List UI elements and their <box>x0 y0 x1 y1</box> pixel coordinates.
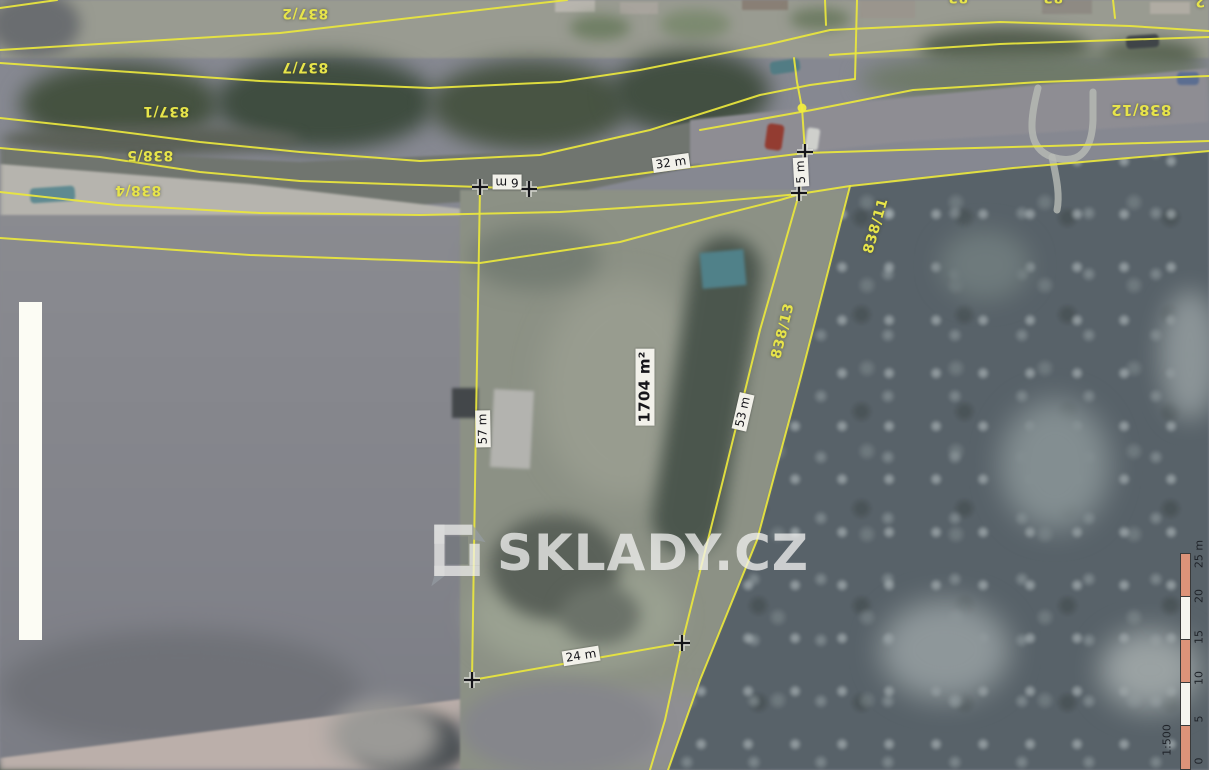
scale-segment <box>1181 597 1190 640</box>
photo-forest-patch <box>1160 290 1209 420</box>
scale-tick-20: 20 <box>1193 589 1206 603</box>
dim-label-57m: 57 m <box>475 410 491 447</box>
cadastral-map: 837/2 837/7 837/1 838/5 838/4 838/12 838… <box>0 0 1209 770</box>
photo-garden <box>660 10 730 38</box>
scale-segment <box>1181 554 1190 597</box>
photo-forest-patch <box>940 230 1030 300</box>
photo-trees <box>430 60 630 150</box>
photo-roof <box>860 0 915 18</box>
parcel-label-838-5: 838/5 <box>127 147 174 163</box>
parcel-label-837-7: 837/7 <box>282 59 329 75</box>
photo-parcel-dark <box>470 225 600 290</box>
scale-bar <box>1180 553 1191 770</box>
photo-roof <box>620 2 658 14</box>
photo-roof <box>555 0 595 12</box>
scale-segment <box>1181 726 1190 769</box>
sklady-watermark: SKLADY.CZ <box>497 524 809 582</box>
parcel-label-838-12: 838/12 <box>1111 101 1172 119</box>
photo-car-blue <box>1177 72 1199 85</box>
scale-ratio: 1:500 <box>1161 724 1174 756</box>
photo-car-teal <box>30 185 76 203</box>
area-label-1704: 1704 m² <box>636 348 655 425</box>
photo-bush <box>560 585 640 645</box>
dim-label-5m: 5 m <box>793 157 810 187</box>
photo-garden <box>570 15 630 40</box>
sklady-logo-icon <box>424 518 490 594</box>
photo-building-light <box>490 389 534 469</box>
parcel-label-partial: 83 <box>948 0 968 5</box>
photo-car-teal <box>769 58 801 75</box>
scale-tick-10: 10 <box>1193 671 1206 685</box>
scale-segment <box>1181 640 1190 683</box>
photo-car-red <box>764 123 784 151</box>
scale-tick-25: 25 m <box>1193 540 1206 568</box>
parcel-label-837-1: 837/1 <box>143 103 190 119</box>
white-cover-bar <box>19 302 42 640</box>
photo-forest-patch <box>880 600 1010 700</box>
photo-roof <box>1150 2 1190 14</box>
parcel-label-partial: 83 <box>1043 0 1063 5</box>
scale-tick-5: 5 <box>1193 716 1206 723</box>
dim-label-6m: 6 m <box>492 175 521 190</box>
photo-forest-patch <box>1000 400 1110 530</box>
scale-tick-15: 15 <box>1193 630 1206 644</box>
scale-tick-0: 0 <box>1193 758 1206 765</box>
parcel-label-838-4: 838/4 <box>115 182 162 198</box>
photo-roof <box>742 0 788 10</box>
photo-ground-patch <box>460 680 660 770</box>
scale-segment <box>1181 683 1190 726</box>
photo-shed-dark <box>452 388 478 418</box>
parcel-label-837-2: 837/2 <box>282 5 329 21</box>
photo-car-dark <box>1126 34 1160 49</box>
photo-garden <box>790 8 850 30</box>
parcel-label-partial: 2 <box>1195 0 1205 9</box>
photo-ground-patch <box>330 700 440 770</box>
photo-shed-teal <box>700 249 747 289</box>
